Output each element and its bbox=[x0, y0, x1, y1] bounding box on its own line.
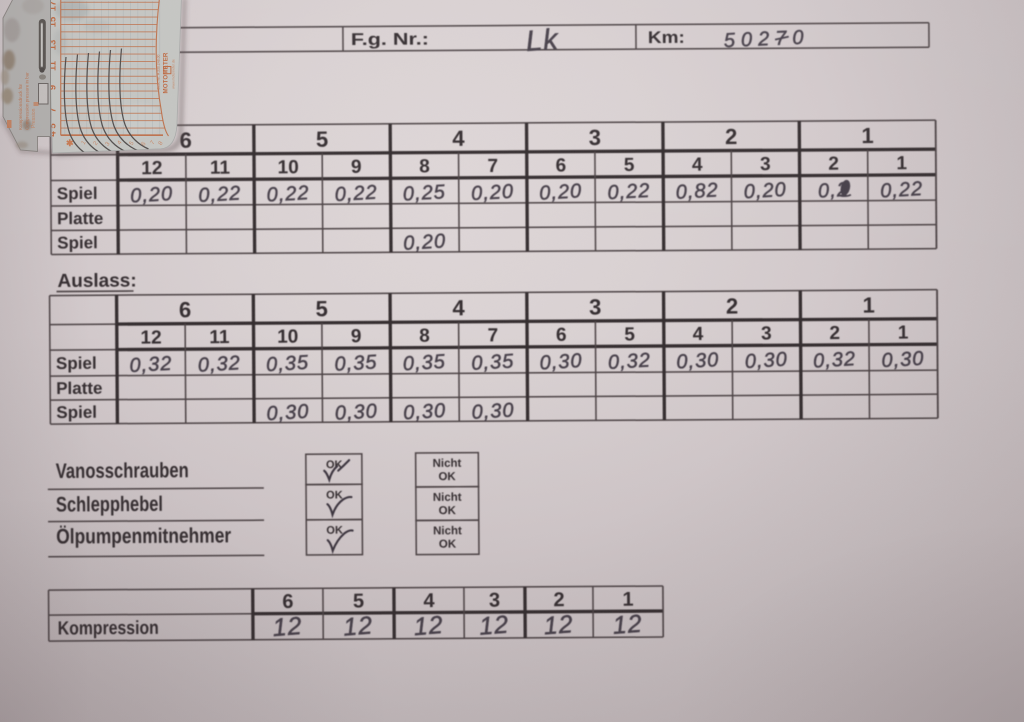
svg-text:Nicht: Nicht bbox=[433, 525, 462, 537]
svg-text:7: 7 bbox=[488, 325, 499, 346]
svg-text:0,30: 0,30 bbox=[266, 401, 310, 425]
svg-text:4: 4 bbox=[423, 590, 435, 612]
svg-text:F.g. Nr.:: F.g. Nr.: bbox=[351, 30, 429, 50]
svg-text:2: 2 bbox=[553, 589, 564, 611]
svg-text:0,32: 0,32 bbox=[813, 348, 857, 372]
svg-text:2: 2 bbox=[828, 154, 839, 175]
svg-text:6: 6 bbox=[282, 591, 293, 613]
svg-text:1: 1 bbox=[622, 589, 633, 611]
svg-text:Vanosschrauben: Vanosschrauben bbox=[56, 459, 189, 483]
svg-text:10: 10 bbox=[277, 327, 298, 348]
svg-text:2: 2 bbox=[725, 124, 737, 149]
svg-text:Schlepphebel: Schlepphebel bbox=[56, 493, 163, 517]
svg-text:Auslass:: Auslass: bbox=[57, 270, 136, 292]
svg-text:0,82: 0,82 bbox=[675, 179, 719, 203]
svg-text:6: 6 bbox=[179, 297, 191, 322]
svg-text:Platte: Platte bbox=[57, 209, 103, 228]
svg-text:4: 4 bbox=[452, 295, 465, 320]
svg-text:Kompressionsdruck für: Kompressionsdruck für bbox=[18, 83, 23, 130]
svg-text:4: 4 bbox=[692, 155, 703, 176]
svg-text:12: 12 bbox=[342, 611, 374, 641]
svg-text:0,32: 0,32 bbox=[197, 352, 241, 376]
svg-text:0,22: 0,22 bbox=[880, 178, 924, 202]
svg-text:www.motometer.de: www.motometer.de bbox=[172, 59, 176, 89]
svg-text:12: 12 bbox=[272, 612, 304, 642]
svg-text:Compression pressure in bar: Compression pressure in bar bbox=[25, 72, 30, 130]
svg-text:Spiel: Spiel bbox=[56, 354, 97, 373]
svg-text:Spiel: Spiel bbox=[57, 233, 98, 252]
svg-text:2: 2 bbox=[829, 323, 840, 344]
svg-text:0,22: 0,22 bbox=[334, 182, 378, 206]
svg-text:0,30: 0,30 bbox=[744, 349, 788, 373]
svg-text:3: 3 bbox=[489, 590, 500, 612]
svg-text:0,32: 0,32 bbox=[607, 349, 651, 373]
svg-text:11: 11 bbox=[209, 327, 230, 348]
svg-text:Nicht: Nicht bbox=[433, 458, 462, 470]
svg-text:OK: OK bbox=[326, 489, 343, 501]
svg-text:0,30: 0,30 bbox=[881, 348, 925, 372]
svg-text:Lk: Lk bbox=[525, 24, 560, 58]
svg-text:50270: 50270 bbox=[723, 27, 809, 53]
svg-text:✱: ✱ bbox=[66, 138, 74, 148]
svg-text:OK: OK bbox=[438, 471, 456, 483]
svg-text:6: 6 bbox=[556, 325, 567, 346]
svg-text:0,35: 0,35 bbox=[471, 350, 515, 374]
svg-text:0,32: 0,32 bbox=[129, 353, 173, 377]
svg-text:0,20: 0,20 bbox=[743, 179, 787, 203]
svg-text:5: 5 bbox=[316, 296, 328, 321]
svg-text:Kompression: Kompression bbox=[58, 618, 159, 640]
svg-text:0,30: 0,30 bbox=[403, 400, 447, 424]
svg-text:1: 1 bbox=[863, 293, 875, 318]
svg-text:8: 8 bbox=[419, 156, 430, 177]
svg-text:Pression: Pression bbox=[31, 108, 37, 128]
svg-text:0,35: 0,35 bbox=[266, 352, 310, 376]
svg-text:Km:: Km: bbox=[648, 28, 685, 47]
svg-text:1: 1 bbox=[896, 153, 907, 174]
svg-text:2: 2 bbox=[726, 293, 738, 318]
svg-text:0,30: 0,30 bbox=[676, 349, 720, 373]
svg-text:1: 1 bbox=[861, 123, 873, 148]
svg-text:0,30: 0,30 bbox=[471, 399, 515, 423]
svg-text:0,30: 0,30 bbox=[334, 400, 378, 424]
svg-text:3: 3 bbox=[589, 294, 601, 319]
svg-text:Best.-Nr. A 330 248.00: Best.-Nr. A 330 248.00 bbox=[157, 54, 161, 89]
svg-text:0,22: 0,22 bbox=[607, 180, 651, 204]
svg-text:12: 12 bbox=[543, 610, 575, 640]
svg-text:9: 9 bbox=[351, 326, 362, 347]
svg-text:4: 4 bbox=[693, 324, 704, 345]
svg-text:0,30: 0,30 bbox=[539, 350, 583, 374]
svg-text:0,20: 0,20 bbox=[403, 230, 447, 254]
svg-text:12: 12 bbox=[612, 610, 644, 640]
svg-text:3: 3 bbox=[760, 154, 771, 175]
svg-text:12: 12 bbox=[478, 611, 510, 641]
svg-text:10: 10 bbox=[278, 157, 299, 178]
svg-text:4: 4 bbox=[452, 126, 465, 151]
svg-text:7: 7 bbox=[487, 156, 498, 177]
svg-text:Nicht: Nicht bbox=[433, 492, 462, 504]
svg-text:3: 3 bbox=[589, 125, 601, 150]
svg-text:3: 3 bbox=[761, 323, 772, 344]
svg-text:Spiel: Spiel bbox=[56, 403, 97, 422]
svg-text:Platte: Platte bbox=[56, 379, 102, 398]
svg-text:9: 9 bbox=[351, 157, 362, 178]
svg-text:0,20: 0,20 bbox=[470, 181, 514, 205]
svg-text:12: 12 bbox=[413, 611, 445, 641]
svg-text:OK: OK bbox=[326, 525, 343, 537]
svg-text:8: 8 bbox=[419, 326, 430, 347]
svg-text:OK: OK bbox=[439, 505, 457, 517]
svg-text:5: 5 bbox=[353, 590, 364, 612]
svg-text:12: 12 bbox=[140, 328, 161, 349]
svg-text:0,20: 0,20 bbox=[539, 180, 583, 204]
svg-text:5: 5 bbox=[316, 127, 328, 152]
svg-text:Ölpumpenmitnehmer: Ölpumpenmitnehmer bbox=[56, 524, 231, 548]
svg-text:5: 5 bbox=[624, 324, 635, 345]
svg-text:OK: OK bbox=[439, 539, 457, 551]
svg-text:0,25: 0,25 bbox=[402, 181, 446, 205]
svg-text:1: 1 bbox=[898, 323, 909, 344]
svg-text:0,35: 0,35 bbox=[402, 351, 446, 375]
svg-text:5: 5 bbox=[624, 155, 635, 176]
svg-text:0,22: 0,22 bbox=[266, 182, 310, 206]
svg-text:6: 6 bbox=[556, 155, 567, 176]
svg-text:0,35: 0,35 bbox=[334, 351, 378, 375]
